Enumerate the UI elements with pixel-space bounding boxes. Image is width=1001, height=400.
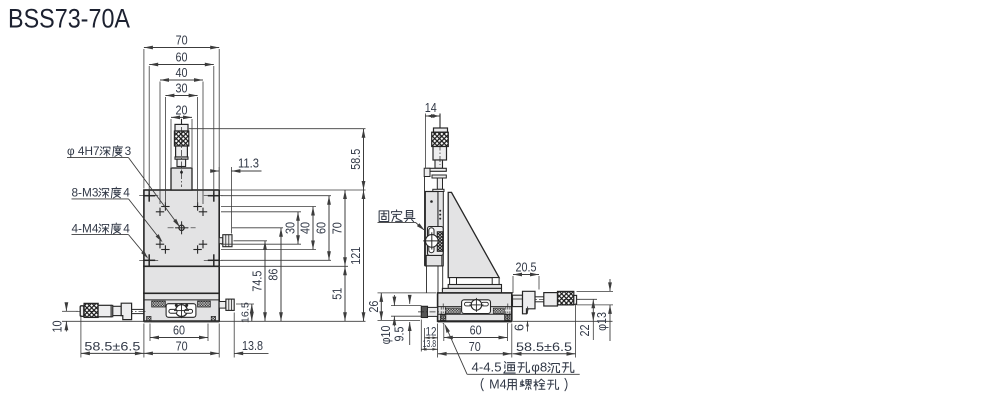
svg-text:4-4.5: 4-4.5	[472, 360, 502, 375]
svg-text:74.5: 74.5	[251, 271, 265, 292]
svg-text:9.5: 9.5	[393, 326, 407, 341]
svg-text:60: 60	[176, 51, 188, 65]
svg-text:4: 4	[123, 186, 130, 200]
svg-text:60: 60	[470, 324, 482, 338]
svg-text:70: 70	[469, 340, 481, 354]
svg-text:58.5±6.5: 58.5±6.5	[84, 339, 140, 353]
svg-text:4: 4	[123, 221, 130, 235]
svg-text:40: 40	[176, 66, 188, 80]
svg-text:58.5±6.5: 58.5±6.5	[516, 340, 572, 354]
svg-text:22: 22	[578, 324, 592, 336]
svg-text:26: 26	[367, 301, 381, 313]
svg-text:20.5: 20.5	[516, 261, 537, 275]
svg-text:10: 10	[51, 320, 65, 332]
svg-text:30: 30	[176, 82, 188, 96]
svg-text:8-M3: 8-M3	[72, 186, 99, 200]
svg-text:86: 86	[267, 269, 281, 281]
svg-text:70: 70	[331, 222, 345, 234]
svg-text:13.8: 13.8	[242, 339, 263, 353]
svg-text:70: 70	[176, 339, 188, 353]
svg-text:12: 12	[426, 326, 437, 338]
svg-text:φ8: φ8	[531, 360, 547, 375]
svg-text:φ13: φ13	[595, 312, 609, 331]
svg-text:3: 3	[125, 144, 132, 158]
svg-text:30: 30	[284, 222, 298, 234]
svg-text:14: 14	[425, 101, 437, 115]
svg-text:121: 121	[349, 247, 363, 265]
svg-text:φ10: φ10	[379, 326, 393, 345]
svg-text:16.5: 16.5	[239, 302, 251, 323]
svg-text:70: 70	[176, 34, 188, 48]
svg-text:φ 4H7: φ 4H7	[67, 144, 100, 158]
svg-text:BSS73-70A: BSS73-70A	[8, 4, 130, 34]
svg-text:60: 60	[173, 324, 185, 338]
svg-text:4-M4: 4-M4	[72, 221, 99, 235]
svg-text:13.8: 13.8	[423, 339, 437, 350]
svg-text:51: 51	[331, 288, 345, 300]
svg-text:58.5: 58.5	[349, 149, 363, 170]
svg-text:M4: M4	[489, 378, 507, 392]
svg-text:60: 60	[315, 222, 329, 234]
svg-text:11.3: 11.3	[238, 157, 259, 171]
svg-text:20: 20	[176, 103, 188, 117]
svg-text:40: 40	[299, 222, 313, 234]
svg-text:6: 6	[512, 324, 526, 331]
